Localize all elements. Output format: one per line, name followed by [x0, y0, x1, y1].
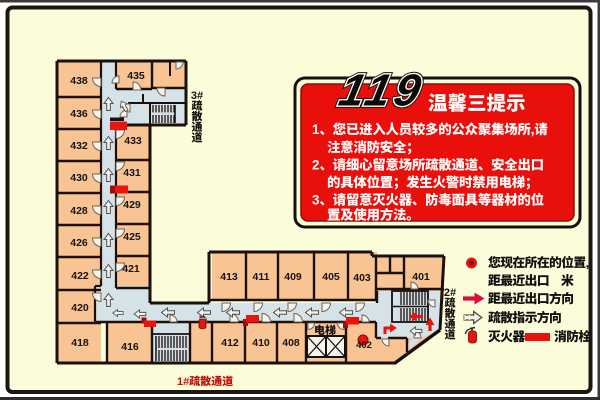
svg-text:410: 410 — [252, 337, 270, 349]
svg-text:402: 402 — [356, 340, 372, 351]
svg-text:411: 411 — [253, 271, 270, 283]
svg-text:431: 431 — [123, 167, 141, 179]
svg-text:438: 438 — [70, 75, 88, 87]
svg-text:428: 428 — [70, 205, 88, 217]
svg-text:435: 435 — [127, 70, 145, 82]
svg-text:433: 433 — [124, 135, 142, 147]
svg-text:3: 3 — [312, 193, 319, 208]
svg-text:3#: 3# — [191, 90, 203, 102]
svg-text:429: 429 — [123, 199, 141, 211]
svg-text:420: 420 — [71, 302, 89, 314]
svg-text:408: 408 — [282, 337, 300, 349]
svg-text:430: 430 — [70, 172, 88, 184]
svg-text:418: 418 — [71, 337, 89, 349]
svg-text:416: 416 — [121, 341, 139, 353]
svg-text:2#: 2# — [444, 287, 456, 299]
svg-text:426: 426 — [70, 237, 88, 249]
svg-text:,: , — [531, 122, 535, 137]
svg-text:432: 432 — [70, 140, 88, 152]
svg-text:1: 1 — [312, 122, 320, 137]
svg-text:422: 422 — [71, 270, 89, 282]
svg-text:425: 425 — [123, 231, 141, 243]
svg-text:401: 401 — [412, 271, 430, 283]
svg-text:1#: 1# — [177, 376, 189, 388]
svg-text:2: 2 — [312, 158, 319, 173]
svg-text:412: 412 — [221, 337, 239, 349]
svg-text:405: 405 — [322, 271, 340, 283]
svg-text:421: 421 — [122, 263, 140, 275]
svg-text:,: , — [586, 255, 590, 270]
svg-text:409: 409 — [284, 271, 302, 283]
svg-text:413: 413 — [220, 271, 238, 283]
svg-text:119: 119 — [335, 65, 429, 115]
svg-text:436: 436 — [70, 108, 88, 120]
svg-text:403: 403 — [353, 272, 371, 284]
